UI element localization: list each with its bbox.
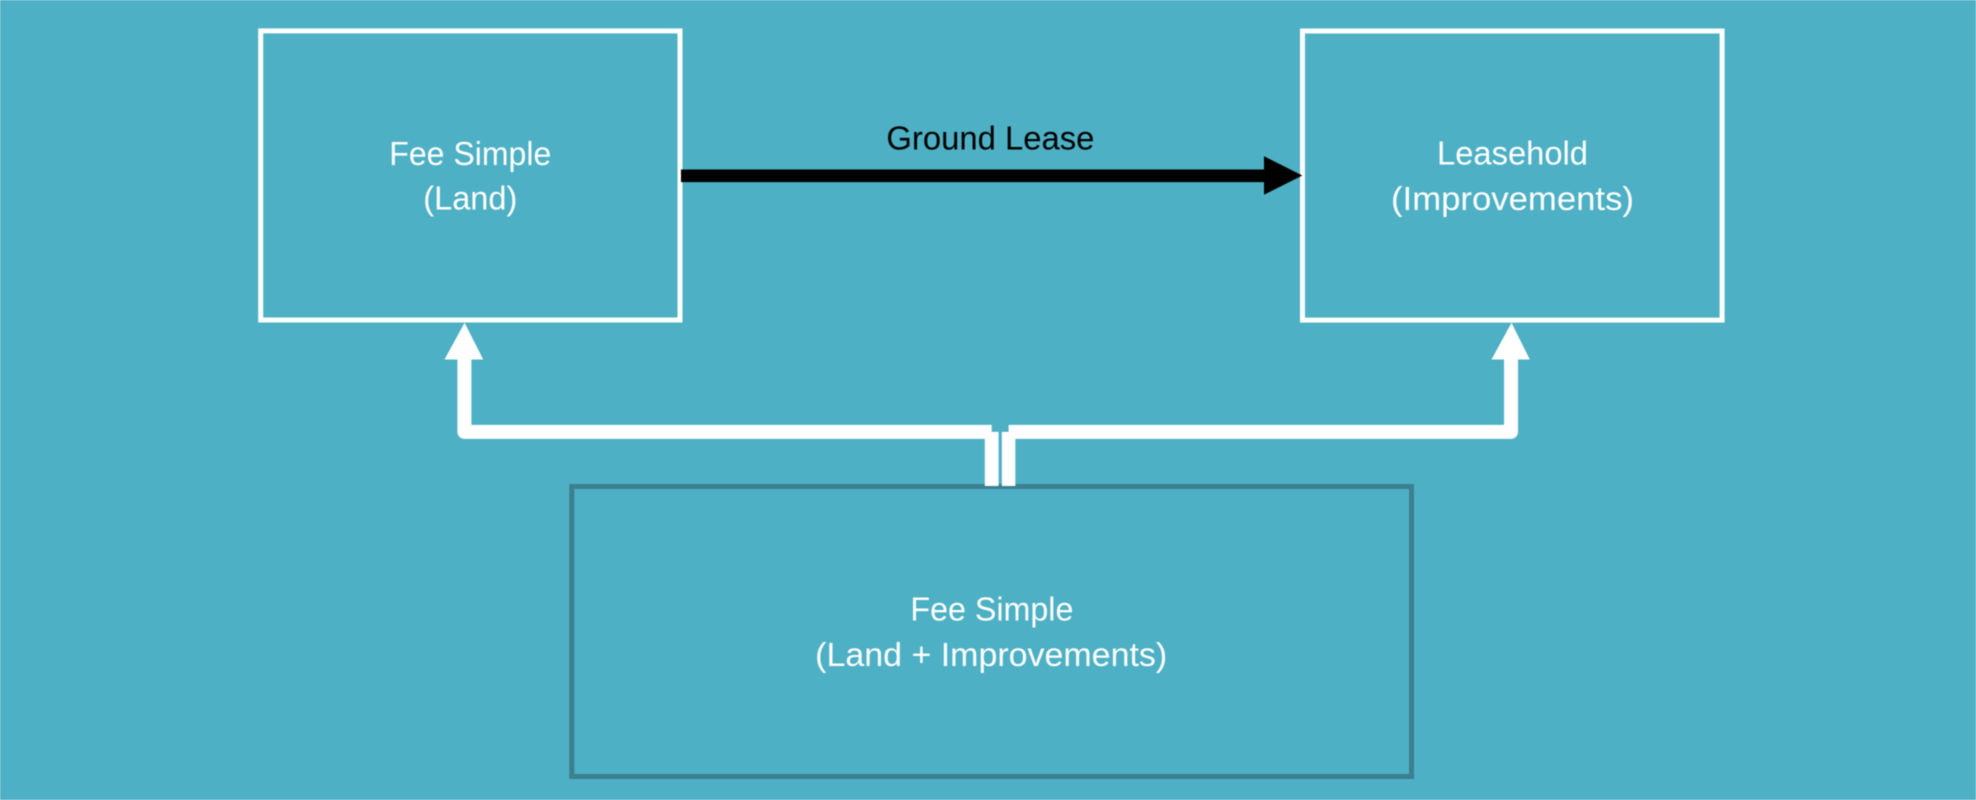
svg-text:Leasehold: Leasehold	[1437, 136, 1588, 173]
svg-text:(Improvements): (Improvements)	[1391, 181, 1634, 218]
svg-text:(Land + Improvements): (Land + Improvements)	[815, 637, 1167, 674]
svg-text:(Land): (Land)	[423, 181, 517, 218]
svg-text:Fee Simple: Fee Simple	[910, 592, 1073, 629]
svg-text:Ground Lease: Ground Lease	[886, 120, 1094, 157]
svg-text:Fee Simple: Fee Simple	[389, 136, 551, 173]
